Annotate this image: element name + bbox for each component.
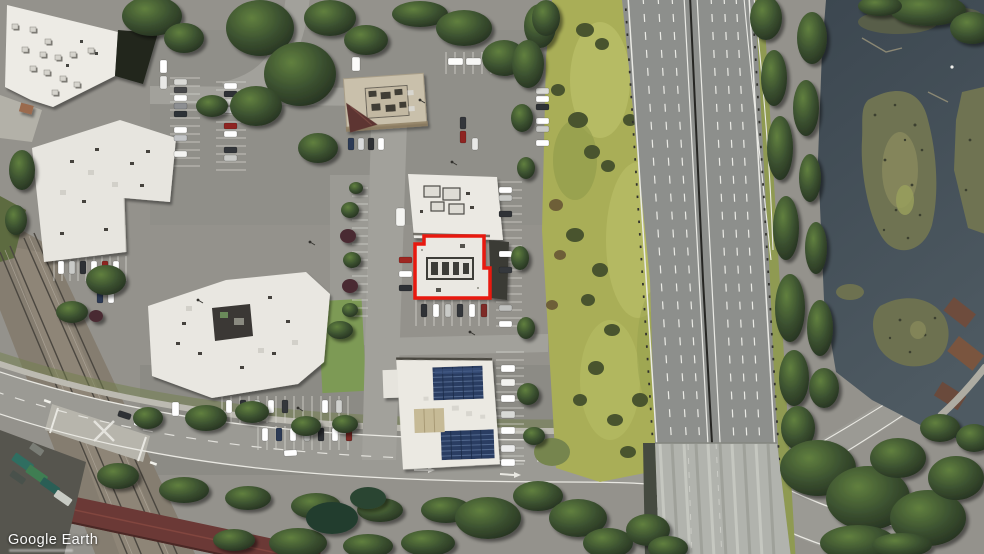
water-white-speck <box>950 65 953 68</box>
satellite-imagery <box>0 0 984 554</box>
attribution-text <box>9 549 73 553</box>
courtyard <box>212 304 253 341</box>
solar-panel-array-north <box>432 366 483 401</box>
aerial-map-canvas[interactable]: Google Earth <box>0 0 984 554</box>
retail-building-tan <box>342 73 428 133</box>
google-earth-watermark: Google Earth <box>8 532 98 548</box>
solar-panel-array-south <box>441 429 495 460</box>
